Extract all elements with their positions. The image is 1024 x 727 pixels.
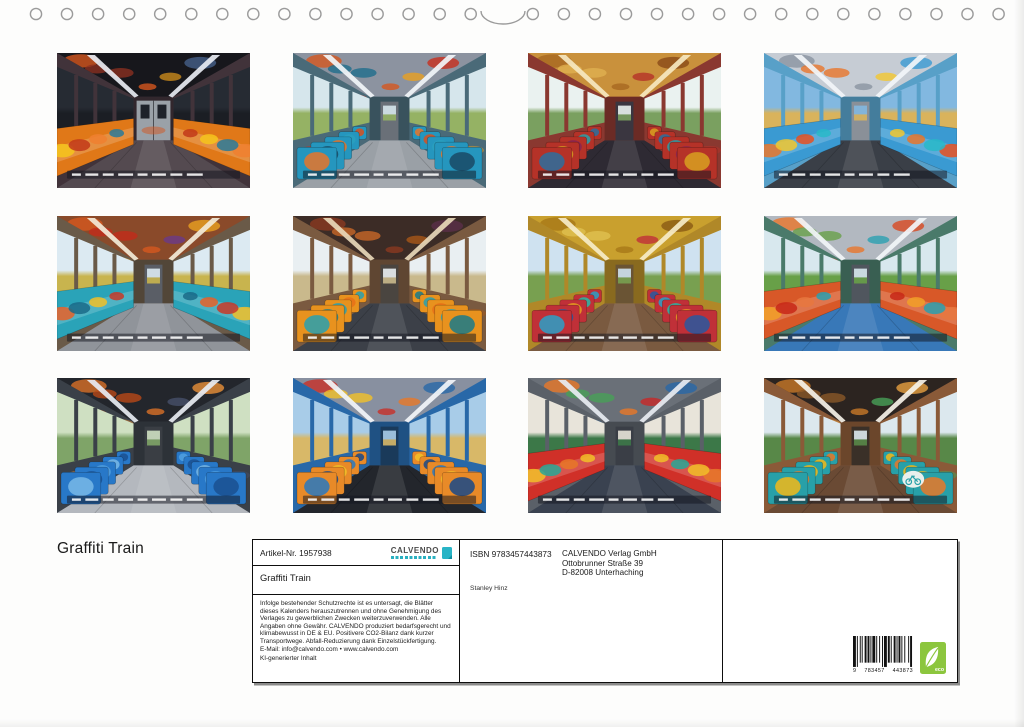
thumb-graffiti-coach-teal-benches — [57, 216, 250, 351]
month-thumbnail-grid — [57, 53, 957, 513]
thumb-graffiti-coach-teal-yellow-bike — [764, 378, 957, 513]
author-name: Stanley Hinz — [470, 585, 508, 592]
eco-leaf-logo: eco — [920, 642, 946, 674]
thumb-graffiti-coach-blue-floor-benches — [764, 216, 957, 351]
publisher-address: CALVENDO Verlag GmbH Ottobrunner Straße … — [562, 549, 657, 578]
thumb-graffiti-coach-blue-seat-rows — [57, 378, 250, 513]
calendar-icon — [442, 547, 452, 559]
article-number-cell: Artikel-Nr. 1957938 CALVENDO — [253, 540, 459, 566]
thumb-graffiti-coach-orange-blue-rows — [293, 378, 486, 513]
product-info-box: Artikel-Nr. 1957938 CALVENDO Graffiti Tr… — [252, 539, 958, 683]
publisher-street: Ottobrunner Straße 39 — [562, 559, 657, 569]
eco-label: eco — [935, 667, 944, 673]
barcode-bars — [853, 636, 913, 668]
thumb-graffiti-coach-golden-red — [528, 53, 721, 188]
thumb-graffiti-coach-yellow-red-rows — [528, 216, 721, 351]
legal-text-cell: Infolge bestehender Schutzrechte ist es … — [253, 595, 459, 682]
info-box-left-column: Artikel-Nr. 1957938 CALVENDO Graffiti Tr… — [253, 540, 460, 682]
info-box-right-column: 9 783457 443873 eco — [723, 540, 957, 682]
calvendo-logo: CALVENDO — [391, 546, 452, 558]
page-title: Graffiti Train — [57, 540, 144, 558]
thumb-graffiti-coach-blue-rows — [293, 53, 486, 188]
article-number: Artikel-Nr. 1957938 — [260, 548, 332, 558]
thumb-graffiti-coach-multicolor-benches — [528, 378, 721, 513]
barcode-digits: 9 783457 443873 — [853, 668, 913, 674]
info-box-middle-column: ISBN 9783457443873 CALVENDO Verlag GmbH … — [460, 540, 723, 682]
page-edge-shadow-bottom — [0, 719, 1024, 727]
calvendo-wordmark: CALVENDO — [391, 546, 439, 555]
publisher-city: D-82008 Unterhaching — [562, 568, 657, 578]
legal-text: Infolge bestehender Schutzrechte ist es … — [260, 600, 452, 645]
thumb-graffiti-subway-orange-benches — [57, 53, 250, 188]
contact-line: E-Mail: info@calvendo.com • www.calvendo… — [260, 646, 452, 654]
ai-content-note: KI-generierter Inhalt — [260, 655, 452, 663]
thumb-graffiti-coach-orange-teal-rows — [293, 216, 486, 351]
spiral-binding — [0, 0, 1024, 32]
calvendo-tagline — [391, 556, 437, 558]
calendar-back-page: Graffiti Train Artikel-Nr. 1957938 CALVE… — [0, 0, 1024, 727]
calendar-title-cell: Graffiti Train — [253, 566, 459, 595]
isbn-number: ISBN 9783457443873 — [470, 549, 552, 559]
publisher-name: CALVENDO Verlag GmbH — [562, 549, 657, 559]
thumb-graffiti-coach-bright-benches — [764, 53, 957, 188]
page-edge-shadow-right — [1014, 0, 1024, 727]
ean-barcode: 9 783457 443873 — [853, 636, 913, 675]
